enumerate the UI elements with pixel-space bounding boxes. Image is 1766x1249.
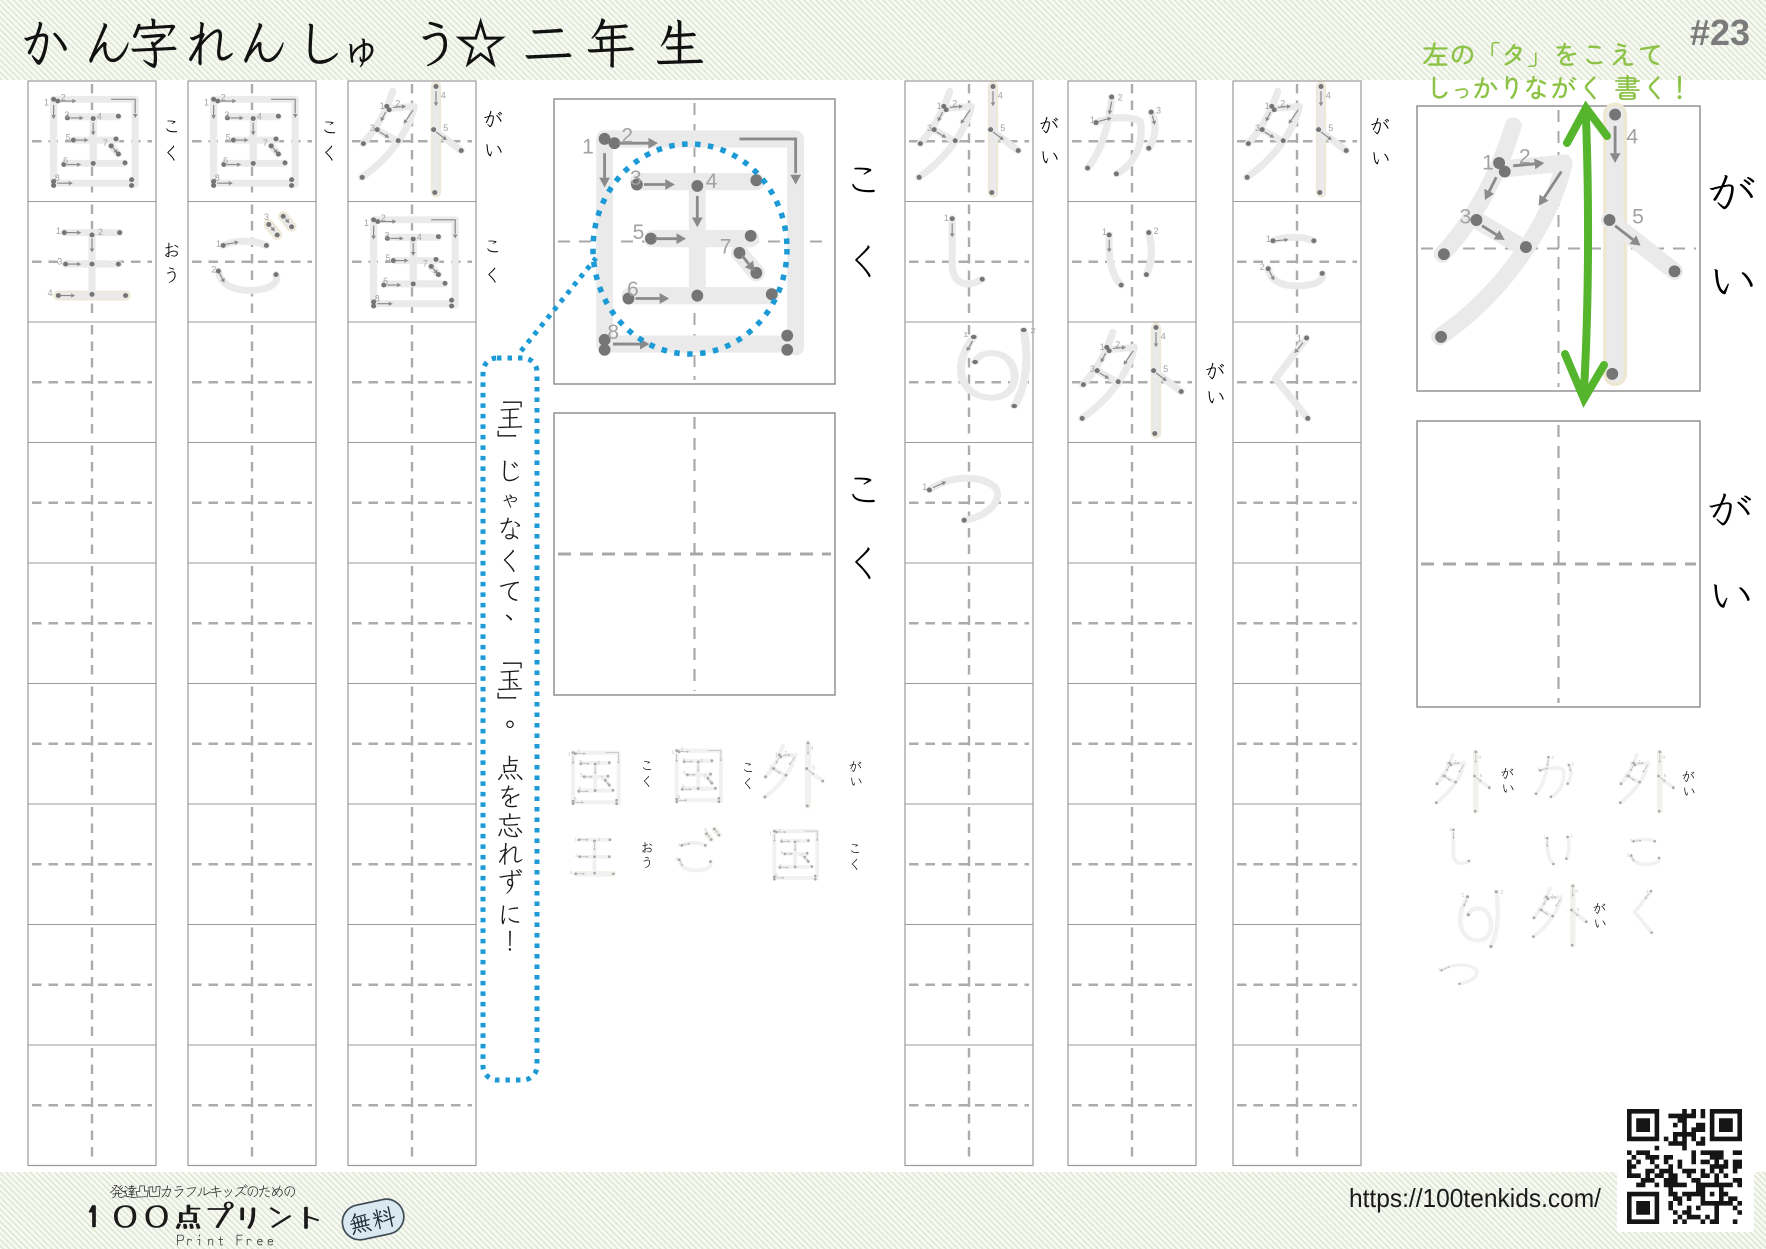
svg-text:#23: #23 xyxy=(1690,12,1750,53)
svg-text:https://100tenkids.com/: https://100tenkids.com/ xyxy=(1349,1183,1602,1213)
